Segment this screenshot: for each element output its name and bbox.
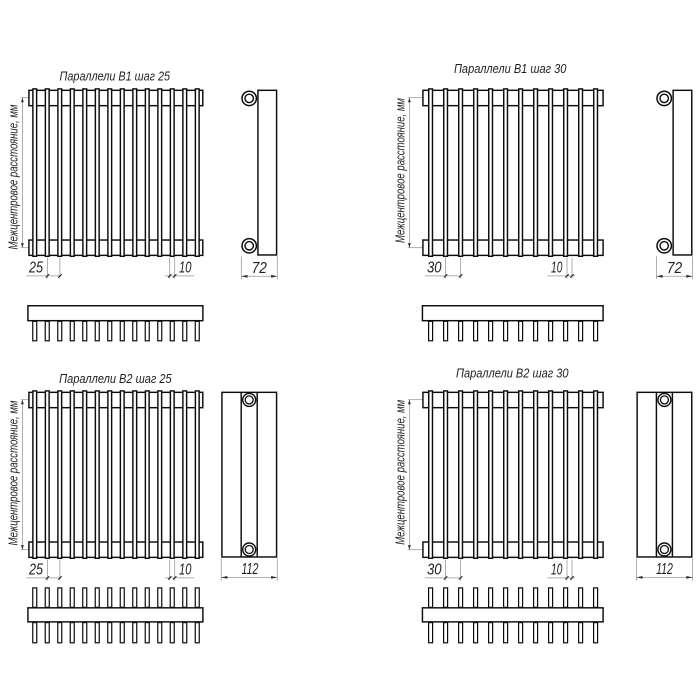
svg-text:72: 72 (252, 260, 267, 277)
svg-text:Межцентровое расстояние, мм: Межцентровое расстояние, мм (7, 400, 21, 545)
svg-text:Параллели В1 шаг 25: Параллели В1 шаг 25 (60, 69, 171, 84)
svg-text:10: 10 (551, 260, 562, 277)
svg-text:Параллели В1 шаг 30: Параллели В1 шаг 30 (454, 61, 567, 76)
svg-text:Межцентровое расстояние, мм: Межцентровое расстояние, мм (393, 399, 407, 544)
svg-text:30: 30 (427, 562, 442, 579)
svg-text:Параллели В2 шаг 30: Параллели В2 шаг 30 (456, 365, 569, 380)
svg-text:25: 25 (28, 260, 43, 277)
svg-text:10: 10 (179, 260, 192, 277)
svg-text:72: 72 (667, 260, 682, 277)
svg-text:10: 10 (551, 562, 562, 579)
svg-text:Межцентровое расстояние, мм: Межцентровое расстояние, мм (393, 98, 407, 243)
svg-text:112: 112 (656, 561, 673, 578)
svg-text:Межцентровое расстояние, мм: Межцентровое расстояние, мм (7, 104, 21, 249)
svg-text:30: 30 (427, 260, 442, 277)
svg-text:25: 25 (28, 562, 43, 579)
svg-text:112: 112 (242, 561, 259, 578)
svg-text:Параллели В2 шаг 25: Параллели В2 шаг 25 (59, 371, 172, 386)
svg-text:10: 10 (179, 562, 192, 579)
